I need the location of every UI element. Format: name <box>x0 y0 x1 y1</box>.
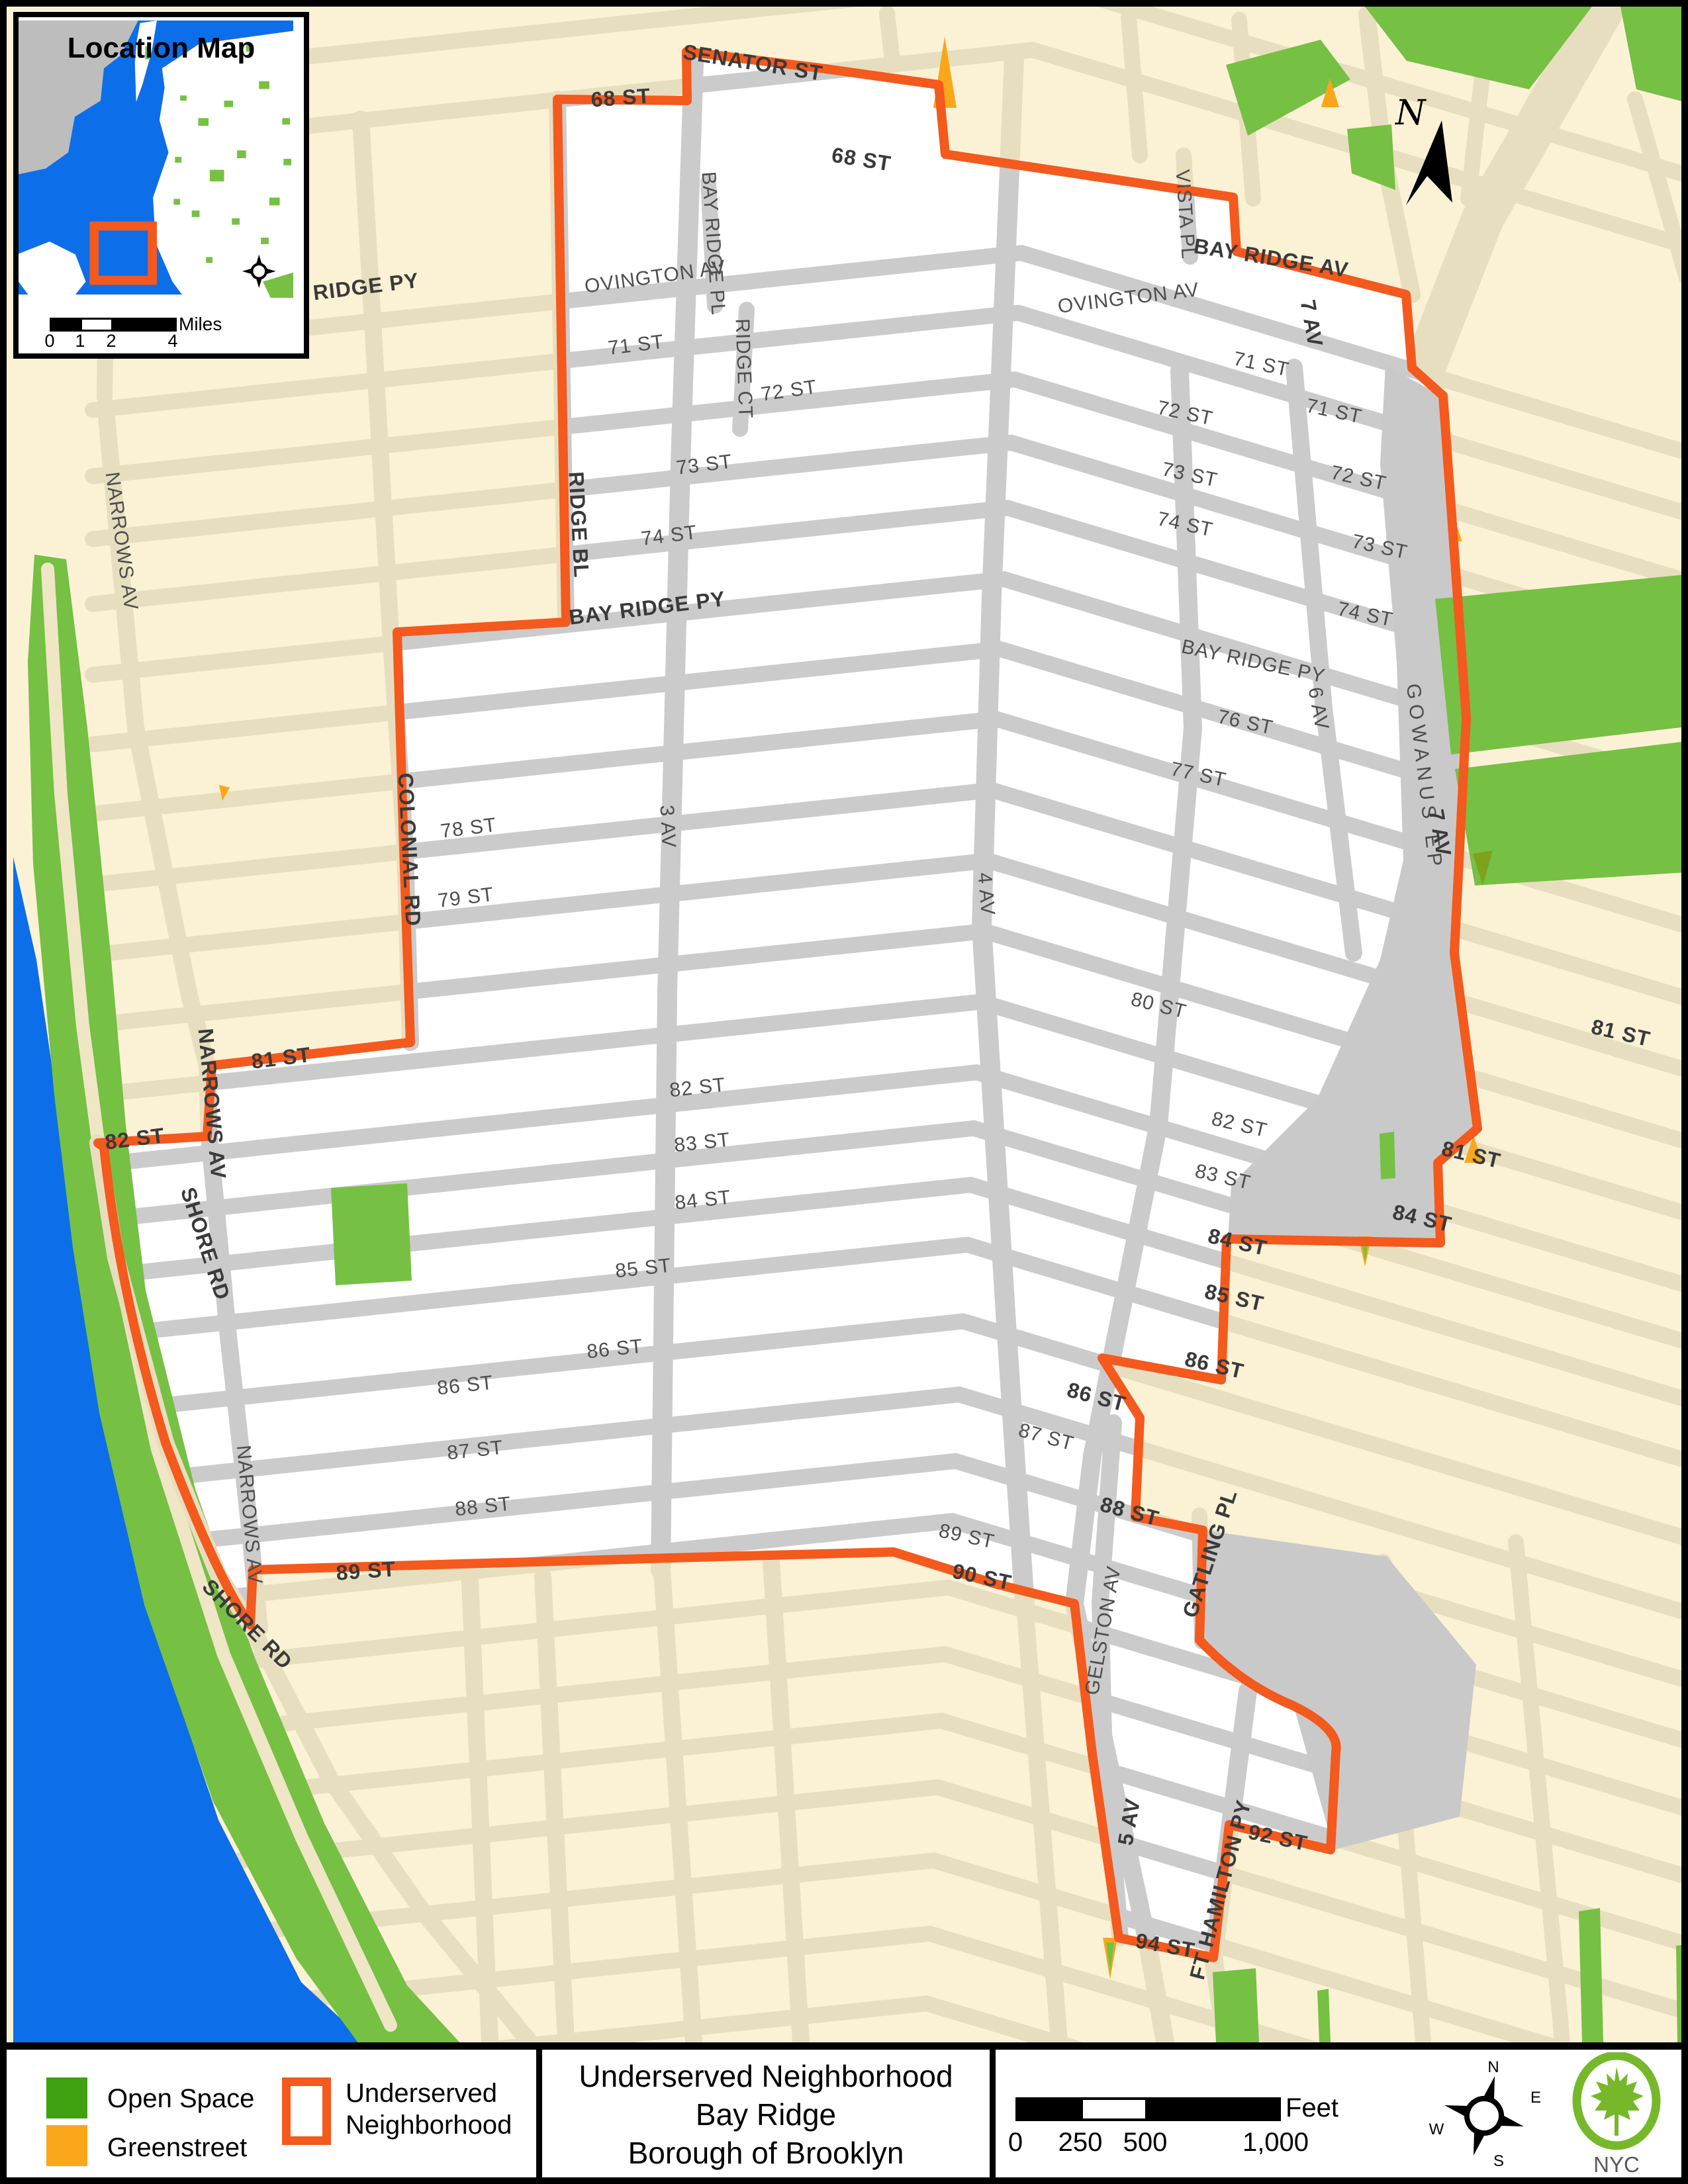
scale-unit: Feet <box>1286 2093 1338 2123</box>
inset-park <box>259 81 269 89</box>
open-space <box>331 1183 412 1285</box>
scale-bar-segment <box>1015 2097 1086 2121</box>
inset-scale-segment <box>80 318 115 332</box>
legend-box: Open Space Greenstreet Underserved Neigh… <box>7 2050 536 2181</box>
map-title-line2: Bay Ridge <box>696 2099 836 2132</box>
avenue <box>1129 17 1140 156</box>
street-label: 89 ST <box>335 1557 397 1584</box>
scale-compass-box: Feet NESW NYC Parks 02505001,000 <box>990 2050 1681 2181</box>
open-space-swatch <box>46 2077 87 2118</box>
inset-park <box>180 95 187 101</box>
open-space <box>1380 1132 1395 1179</box>
scale-bar-segment <box>1145 2097 1281 2121</box>
open-space <box>1676 1944 1687 2042</box>
nyc-parks-leaf-icon <box>1571 2052 1662 2152</box>
open-space <box>1317 1989 1331 2042</box>
compass-icon: NESW <box>1425 2055 1544 2174</box>
nyc-parks-logo-text: NYC Parks <box>1564 2152 1669 2184</box>
inset-park <box>282 118 290 124</box>
inset-park <box>237 150 246 158</box>
greenstreet-label: Greenstreet <box>107 2133 247 2163</box>
underserved-swatch <box>282 2077 331 2145</box>
location-map-inset: Location Map 0124Miles <box>13 12 309 359</box>
open-space-label: Open Space <box>107 2084 254 2114</box>
inset-scale-tick: 0 <box>44 331 54 351</box>
street-label: 4 AV <box>973 872 999 917</box>
avenue <box>887 13 892 61</box>
inset-park <box>206 257 212 263</box>
open-space <box>1213 1968 1259 2042</box>
scale-bar-tick: 250 <box>1058 2128 1103 2158</box>
inset-scale-tick: 4 <box>167 331 177 351</box>
scale-bar-tick: 1,000 <box>1243 2128 1309 2158</box>
inset-scale-segment <box>50 318 84 332</box>
scale-bar-tick: 0 <box>1008 2128 1023 2158</box>
underserved-label-line1: Underserved <box>346 2079 497 2109</box>
inset-park <box>232 218 240 225</box>
compass-letter-w: W <box>1429 2120 1444 2138</box>
inset-scale-band: 0124Miles <box>19 308 304 353</box>
underserved-label-line2: Neighborhood <box>346 2111 512 2140</box>
inset-park <box>210 170 224 182</box>
compass-letter-e: E <box>1530 2089 1541 2107</box>
inset-scale-tick: 2 <box>106 331 116 351</box>
north-letter: N <box>1394 93 1427 133</box>
inset-title: Location Map <box>19 32 304 65</box>
inset-park <box>224 101 234 107</box>
compass-rose: NESW <box>1425 2055 1544 2177</box>
nyc-parks-logo: NYC Parks <box>1564 2052 1669 2184</box>
inset-scale-unit: Miles <box>179 314 222 335</box>
inset-park <box>175 157 181 163</box>
north-arrow: N <box>1364 79 1523 235</box>
inset-land-brooklyn_queens <box>153 31 293 298</box>
street-label: 3 AV <box>655 805 679 849</box>
inset-park <box>173 199 180 205</box>
inset-park <box>261 238 269 244</box>
inset-park <box>198 118 209 126</box>
inset-park <box>283 159 291 165</box>
north-arrow-shape <box>1406 120 1452 205</box>
open-space <box>1435 574 1687 754</box>
map-title-line3: Borough of Brooklyn <box>628 2137 904 2170</box>
scale-bar-segment <box>1080 2097 1150 2121</box>
legend-strip: Open Space Greenstreet Underserved Neigh… <box>7 2042 1681 2184</box>
map-page: SENATOR ST68 ST68 STBAY RIDGE PLOVINGTON… <box>0 0 1688 2184</box>
north-arrow-icon: N <box>1364 79 1523 232</box>
title-box: Underserved Neighborhood Bay Ridge Borou… <box>536 2050 990 2181</box>
compass-letter-n: N <box>1487 2058 1499 2076</box>
inset-scale-segment <box>111 318 177 332</box>
street-label: 68 ST <box>590 83 651 111</box>
scale-bar-tick: 500 <box>1123 2128 1168 2158</box>
inset-park <box>192 210 200 217</box>
compass-letter-s: S <box>1493 2152 1504 2170</box>
greenstreet-swatch <box>46 2125 87 2166</box>
map-title-line1: Underserved Neighborhood <box>579 2060 953 2093</box>
inset-park <box>269 198 280 206</box>
open-space <box>1579 1908 1603 2042</box>
inset-scale-tick: 1 <box>75 331 85 351</box>
street-label: RIDGE CT <box>731 318 756 419</box>
